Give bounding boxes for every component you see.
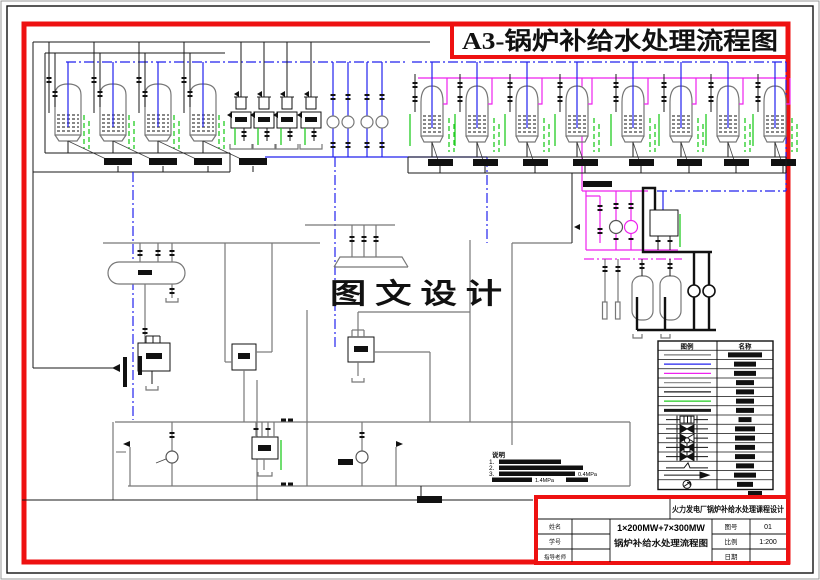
dosing-pump (610, 221, 623, 234)
title-block: 火力发电厂锅炉补给水处理课程设计 姓名 学号 指导老师 1×200MW+7×30… (536, 497, 788, 563)
legend-col-name: 名称 (739, 342, 753, 351)
chemical-dosing-section (574, 181, 786, 338)
field-label: 比例 (725, 537, 738, 546)
vessel-ion-exchanger (455, 62, 499, 173)
vessel-ion-exchanger (611, 62, 655, 173)
process-diagram: 图 文 设 计 (0, 0, 820, 580)
svg-text:0.4MPa: 0.4MPa (578, 472, 598, 478)
title-banner: A3-锅炉补给水处理流程图 (452, 24, 788, 57)
drawing-name: 锅炉补给水处理流程图 (613, 538, 708, 548)
pump (361, 62, 373, 157)
filter-unit (273, 42, 298, 149)
label-bar (417, 496, 442, 503)
vessel-ion-exchanger (659, 62, 703, 173)
pump-symbol-icon (683, 480, 691, 488)
legend-label-bar (735, 454, 755, 459)
legend-label-bar (737, 482, 753, 487)
legend-label-bar (736, 380, 754, 385)
legend-label-bar (739, 417, 752, 422)
notes: 说明 1. 2. 3. 0.4MPa 1.4MPa (489, 450, 598, 484)
label-bar (583, 181, 612, 187)
resin-vessel (632, 276, 653, 320)
field-label: 姓名 (549, 523, 561, 531)
svg-text:3.: 3. (489, 471, 495, 478)
legend-label-bar (736, 389, 754, 394)
resin-vessel (660, 276, 681, 320)
pump (376, 62, 388, 157)
watermark-text: 图 文 设 计 (330, 277, 502, 310)
legend-label-bar (736, 463, 754, 468)
drawing-spec: 1×200MW+7×300MW (617, 523, 705, 533)
legend-col-symbol: 图例 (681, 342, 695, 351)
bottom-piping (22, 419, 762, 504)
legend-label-bar (734, 473, 756, 478)
mixed-bed-unit (650, 210, 678, 236)
demineralizer-vessels-right (408, 62, 797, 173)
vessel-ion-exchanger (555, 62, 599, 173)
label-bar (338, 459, 353, 465)
drawing-number: 01 (764, 524, 772, 531)
filter-unit (250, 42, 275, 149)
project-name: 火力发电厂锅炉补给水处理课程设计 (672, 504, 784, 514)
field-label: 日期 (725, 553, 739, 561)
filter-unit (297, 42, 322, 149)
legend-table: 图例 名称 (658, 341, 773, 490)
drain-pump (356, 451, 368, 463)
notes-header: 说明 (492, 450, 506, 459)
legend-label-bar (728, 352, 762, 357)
pump (327, 62, 339, 157)
legend-label-bar (736, 408, 754, 413)
legend-label-bar (734, 362, 756, 367)
vessel-ion-exchanger (706, 62, 750, 173)
transfer-pump (688, 285, 700, 297)
vessel-ion-exchanger (410, 62, 454, 173)
drawing-scale: 1:200 (759, 539, 777, 546)
drain-pump (166, 451, 178, 463)
field-label: 指导老师 (544, 553, 567, 561)
legend-label-bar (735, 426, 755, 431)
legend-label-bar (735, 445, 755, 450)
svg-text:1.4MPa: 1.4MPa (535, 478, 555, 484)
vessel-ion-exchanger (505, 62, 549, 173)
filter-unit (227, 42, 252, 149)
legend-label-bar (735, 436, 755, 441)
legend-label-bar (736, 399, 754, 404)
cad-drawing-viewport: 图 文 设 计 (0, 0, 820, 580)
drawing-title: A3-锅炉补给水处理流程图 (462, 27, 778, 55)
legend-label-bar (734, 371, 756, 376)
dosing-pump (625, 221, 638, 234)
label-bar (138, 356, 142, 375)
filter-units (227, 42, 322, 149)
field-label: 图号 (725, 523, 739, 531)
pump (342, 62, 354, 157)
degasifier-and-tanks (33, 243, 320, 422)
transfer-pump (703, 285, 715, 297)
label-bar (123, 357, 127, 387)
field-label: 学号 (549, 538, 561, 546)
open-tank-and-center-box (257, 173, 572, 500)
